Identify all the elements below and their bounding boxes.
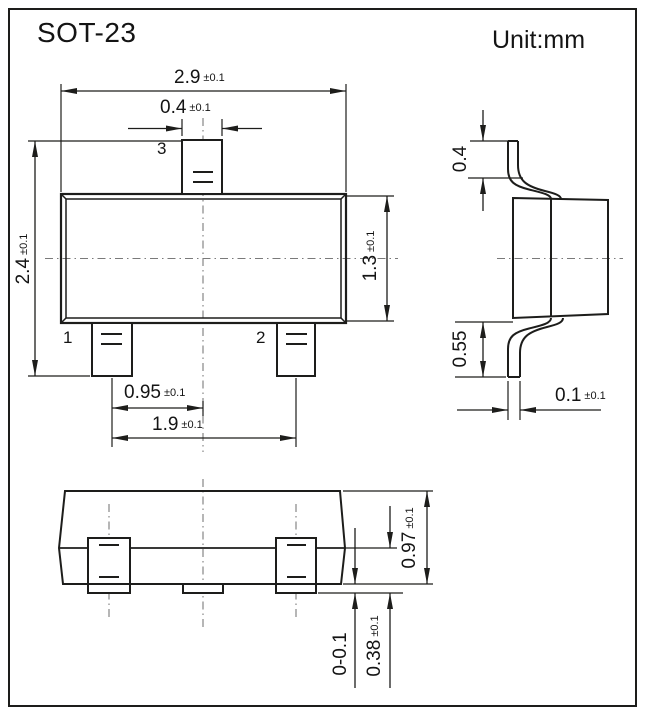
pin2-pad — [277, 323, 315, 376]
dim-lead-thickness-tol: ±0.1 — [584, 390, 605, 402]
dim-body-width: 2.9±0.1 — [174, 67, 225, 89]
top-view-extension-lines — [28, 84, 394, 447]
pin3-pad — [182, 140, 222, 194]
dim-body-width-value: 2.9 — [174, 67, 200, 88]
dim-pin-width: 0.4±0.1 — [160, 97, 211, 119]
drawing-canvas — [0, 0, 645, 715]
dim-pin-pitch: 0.95±0.1 — [124, 382, 185, 404]
front-view-centerlines — [109, 479, 296, 628]
dim-lead-top-length: 0.4 — [450, 146, 472, 172]
dim-pin-width-value: 0.4 — [160, 97, 186, 118]
dim-body-height-tol: ±0.1 — [404, 507, 416, 528]
dim-standoff-value: 0-0.1 — [330, 632, 351, 675]
sot23-package-drawing: SOT-23 Unit:mm 3 1 2 2.9±0.1 0.4±0.1 2.4… — [0, 0, 645, 715]
dim-body-width-tol: ±0.1 — [203, 72, 224, 84]
front-lead1-foot — [88, 584, 130, 593]
pin3-number: 3 — [157, 139, 166, 159]
dim-lead-thickness: 0.1±0.1 — [555, 385, 606, 407]
gullwing-lead-top — [508, 141, 561, 199]
front-lead3-foot — [183, 584, 223, 593]
pin2-number: 2 — [256, 328, 265, 348]
dim-body-height-value: 0.97 — [399, 532, 420, 569]
gullwing-lead-bottom — [508, 318, 563, 377]
dim-body-depth-tol: ±0.1 — [365, 231, 377, 252]
dim-lead-top-length-value: 0.4 — [450, 146, 471, 172]
dim-overall-height-value: 2.4 — [13, 258, 34, 284]
dim-pin-span-value: 1.9 — [152, 414, 178, 435]
dim-pin-pitch-value: 0.95 — [124, 382, 161, 403]
dim-lead-bottom-length-value: 0.55 — [450, 331, 471, 368]
package-title: SOT-23 — [37, 17, 136, 49]
top-view — [28, 84, 398, 452]
dim-lead-shoulder-tol: ±0.1 — [369, 615, 381, 636]
dim-overall-height-tol: ±0.1 — [18, 234, 30, 255]
dim-body-depth: 1.3±0.1 — [360, 231, 382, 282]
dim-lead-thickness-value: 0.1 — [555, 385, 581, 406]
dim-pin-span-tol: ±0.1 — [181, 419, 202, 431]
side-view-dimension-lines — [457, 110, 601, 410]
dim-pin-span: 1.9±0.1 — [152, 414, 203, 436]
dim-overall-height: 2.4±0.1 — [13, 234, 35, 285]
dim-body-depth-value: 1.3 — [360, 255, 381, 281]
dim-pin-pitch-tol: ±0.1 — [164, 387, 185, 399]
dim-lead-shoulder-value: 0.38 — [364, 640, 385, 677]
pin1-pad — [92, 323, 132, 376]
dim-body-height: 0.97±0.1 — [399, 507, 421, 568]
dim-standoff: 0-0.1 — [330, 632, 352, 675]
dim-lead-shoulder: 0.38±0.1 — [364, 615, 386, 676]
dim-pin-width-tol: ±0.1 — [189, 102, 210, 114]
pin1-number: 1 — [63, 328, 72, 348]
unit-label: Unit:mm — [492, 26, 585, 55]
side-view — [455, 110, 623, 420]
front-lead2-foot — [276, 584, 316, 593]
dim-lead-bottom-length: 0.55 — [450, 331, 472, 368]
